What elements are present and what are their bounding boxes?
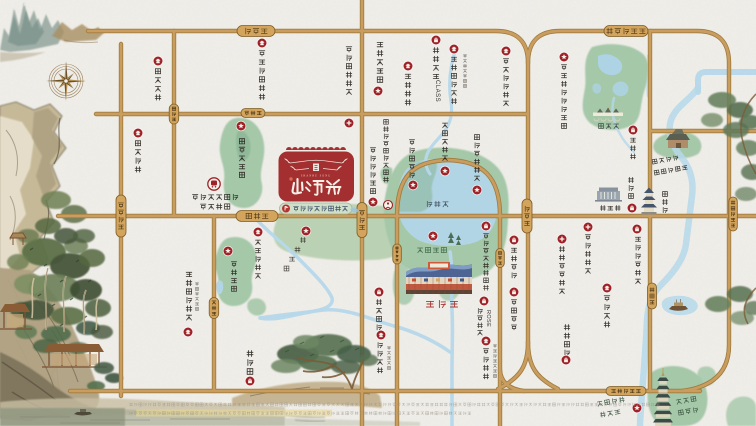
svg-text:ROSE: ROSE [485,310,491,327]
svg-text:CLASS: CLASS [434,80,440,102]
svg-text:SHANHE SONG: SHANHE SONG [301,175,331,178]
